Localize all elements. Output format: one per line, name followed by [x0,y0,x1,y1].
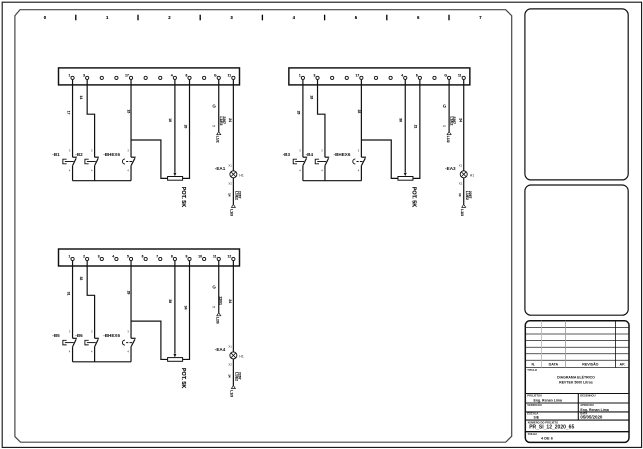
svg-text:DATA: DATA [549,362,559,366]
svg-text:12: 12 [227,254,231,258]
svg-text:24: 24 [228,118,232,122]
svg-text:X1: X1 [228,164,232,168]
svg-text:4: 4 [112,254,114,258]
svg-text:-EA3: -EA3 [445,166,456,171]
svg-text:3: 3 [83,73,85,77]
svg-text:14: 14 [458,193,462,197]
svg-text:L1/3: L1/3 [230,390,234,397]
svg-text:13: 13 [212,124,215,128]
svg-text:X2: X2 [459,181,463,185]
svg-text:6: 6 [142,254,144,258]
svg-text:POT. 5K: POT. 5K [180,187,186,207]
svg-text:H1: H1 [470,173,474,177]
svg-text:X2: X2 [228,362,232,366]
svg-text:FOLHA: FOLHA [528,432,537,436]
svg-text:AP.: AP. [620,362,626,366]
svg-text:-EA4: -EA4 [215,347,226,352]
svg-text:7: 7 [156,254,158,258]
svg-text:TITULO: TITULO [527,368,537,372]
svg-text:21: 21 [414,125,418,129]
svg-text:4: 4 [401,73,403,77]
svg-text:17: 17 [66,111,70,115]
svg-text:1: 1 [69,73,71,77]
svg-text:G: G [212,103,216,108]
svg-text:L1/2: L1/2 [216,136,220,143]
svg-text:4: 4 [171,73,173,77]
svg-text:-B5: -B5 [52,333,60,338]
svg-text:H1: H1 [239,173,243,177]
svg-text:15: 15 [127,110,131,114]
svg-text:34: 34 [183,306,187,310]
svg-text:25: 25 [297,111,301,115]
svg-text:6: 6 [185,73,187,77]
svg-text:2267: 2267 [237,191,241,199]
svg-text:2: 2 [83,254,85,258]
svg-text:2267: 2267 [237,372,241,380]
svg-text:G: G [214,73,217,77]
svg-text:26: 26 [309,96,313,100]
svg-text:31: 31 [66,292,70,296]
svg-text:20: 20 [183,125,187,129]
svg-text:-B6: -B6 [75,333,83,338]
svg-text:5: 5 [127,254,129,258]
svg-text:14: 14 [79,96,83,100]
svg-text:4 DE 6: 4 DE 6 [541,435,554,440]
svg-text:9: 9 [185,254,187,258]
svg-text:POT. 5K: POT. 5K [180,368,186,388]
svg-text:24: 24 [228,299,232,303]
svg-text:L1/3: L1/3 [460,209,464,216]
svg-text:-BHEX6: -BHEX6 [103,152,120,157]
svg-text:11: 11 [213,254,217,258]
svg-text:-BHEX6: -BHEX6 [334,152,351,157]
svg-text:X1: X1 [228,345,232,349]
svg-text:PROJETOU: PROJETOU [527,393,542,397]
svg-text:29: 29 [127,291,131,295]
svg-text:-B3: -B3 [283,152,291,157]
svg-text:DESENHOU: DESENHOU [580,393,595,397]
svg-text:13: 13 [212,305,215,309]
svg-text:N.: N. [532,362,536,366]
svg-text:-B4: -B4 [306,152,314,157]
svg-text:L2/3: L2/3 [216,317,220,324]
svg-text:S/E: S/E [534,416,540,420]
svg-text:11: 11 [458,73,462,77]
svg-text:REVISÃO: REVISÃO [582,361,598,366]
svg-text:-BHEX6: -BHEX6 [103,333,120,338]
svg-text:14: 14 [228,193,232,197]
svg-text:X1: X1 [459,164,463,168]
svg-text:POT. 5K: POT. 5K [410,187,416,207]
svg-text:-B2: -B2 [75,152,83,157]
svg-text:17: 17 [125,73,129,77]
svg-text:220/1: 220/1 [219,297,223,306]
svg-text:APROVOU: APROVOU [580,403,594,407]
svg-text:10: 10 [198,254,202,258]
svg-text:38: 38 [168,299,172,303]
svg-text:17: 17 [356,73,360,77]
svg-text:Eng. Renan Lima: Eng. Renan Lima [580,408,608,412]
svg-text:REVTEK 5000 Litros: REVTEK 5000 Litros [559,381,593,385]
svg-text:DIAGRAMA ELÉTRICO: DIAGRAMA ELÉTRICO [557,375,595,380]
svg-text:13: 13 [443,124,446,128]
svg-text:X2: X2 [228,181,232,185]
svg-text:11: 11 [228,73,232,77]
svg-text:PR_SI_12_2020_65: PR_SI_12_2020_65 [529,425,574,431]
svg-text:L1/3: L1/3 [230,209,234,216]
svg-text:14: 14 [228,374,232,378]
svg-text:2267: 2267 [222,116,226,124]
svg-text:2267: 2267 [468,191,472,199]
svg-text:3: 3 [98,254,100,258]
svg-text:22: 22 [357,110,361,114]
svg-text:05/05/2020: 05/05/2020 [580,415,603,420]
svg-text:G: G [443,103,447,108]
svg-text:2267: 2267 [452,116,456,124]
svg-text:VERIFICOU: VERIFICOU [527,403,542,407]
svg-text:-B1: -B1 [52,152,60,157]
svg-text:G: G [444,73,447,77]
svg-text:8: 8 [171,254,173,258]
svg-text:36: 36 [398,118,402,122]
svg-text:32: 32 [79,277,83,281]
svg-text:L1/2: L1/2 [446,136,450,143]
svg-text:24: 24 [458,118,462,122]
svg-text:G: G [212,284,216,289]
svg-text:3: 3 [313,73,315,77]
svg-text:Eng. Renan Lima: Eng. Renan Lima [534,399,562,403]
svg-text:-EA1: -EA1 [215,166,226,171]
svg-text:1: 1 [69,254,71,258]
svg-text:H1: H1 [239,355,243,359]
svg-text:16: 16 [168,118,172,122]
svg-text:1: 1 [299,73,301,77]
svg-text:6: 6 [416,73,418,77]
